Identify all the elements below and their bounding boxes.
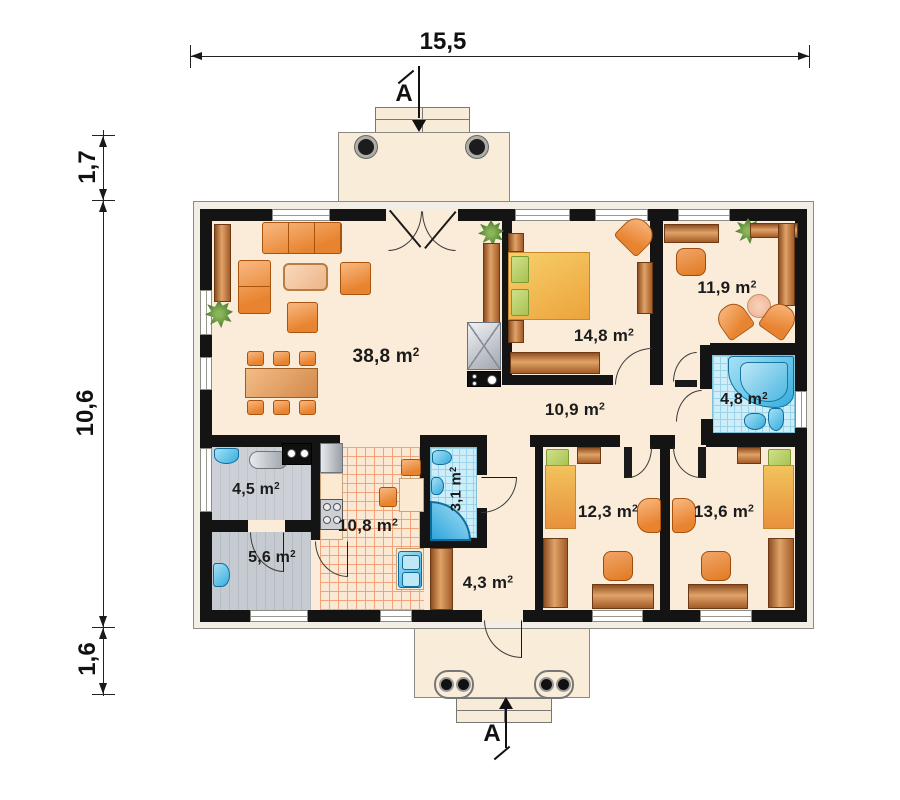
door-leaf: [675, 380, 697, 387]
room-label-utility: 4,5 m2: [232, 481, 280, 499]
burner: [323, 516, 331, 524]
pillow: [511, 289, 529, 316]
desk: [664, 224, 719, 243]
coffee-table: [283, 263, 328, 291]
porch-column-pair: [534, 670, 574, 699]
sink-basin: [402, 555, 420, 570]
dining-chair: [247, 351, 264, 366]
room-label-boiler: 5,6 m2: [248, 549, 296, 567]
nightstand: [737, 447, 761, 464]
dimension-label-porch-top: 1,7: [74, 150, 102, 183]
dimension-arrow: [798, 52, 809, 60]
nightstand: [508, 320, 524, 343]
wardrobe: [768, 538, 794, 608]
nightstand: [508, 233, 524, 252]
wardrobe: [430, 548, 453, 610]
section-line: [418, 66, 420, 118]
sink: [214, 448, 239, 464]
wall-cabinet: [214, 224, 231, 302]
dimension-arrow: [99, 189, 107, 200]
dining-chair: [273, 351, 290, 366]
window: [678, 209, 730, 221]
room-label-kitchen: 10,8 m2: [338, 516, 398, 536]
window: [272, 209, 330, 221]
window: [592, 610, 643, 622]
porch-column-pair: [434, 670, 474, 699]
room-label-living: 38,8 m2: [352, 346, 419, 368]
dimension-label-porch-bottom: 1,6: [74, 642, 102, 675]
sink: [431, 477, 444, 495]
dining-chair: [247, 400, 264, 415]
cooker-hood: [467, 322, 501, 370]
window: [515, 209, 570, 221]
porch-column: [439, 677, 454, 692]
dimension-arrow: [99, 201, 107, 212]
porch-column: [456, 677, 471, 692]
room-label-bedroom: 14,8 m2: [574, 326, 634, 346]
single-bed: [545, 465, 576, 529]
office-chair: [676, 248, 706, 276]
desk: [592, 584, 654, 609]
shelf: [778, 223, 795, 306]
dining-chair: [273, 400, 290, 415]
wall: [477, 435, 487, 475]
porch-column: [355, 136, 377, 158]
sink-basin: [402, 572, 420, 587]
loveseat: [238, 260, 271, 314]
dining-chair: [299, 400, 316, 415]
window: [795, 391, 807, 428]
burner: [472, 381, 477, 386]
kitchen-table: [399, 478, 424, 512]
wardrobe: [543, 538, 568, 608]
room-label-kids-left: 12,3 m2: [578, 502, 638, 522]
dimension-arrow: [99, 628, 107, 639]
sofa: [262, 222, 342, 254]
armchair: [340, 262, 371, 295]
kitchen-chair: [379, 487, 397, 507]
wall: [710, 343, 795, 355]
room-label-kids-right: 13,6 m2: [694, 502, 754, 522]
room-label-wc: 3,1 m2: [448, 467, 465, 512]
fridge: [320, 443, 343, 473]
dimension-label-depth: 10,6: [72, 390, 100, 437]
washer: [282, 443, 312, 465]
dresser: [510, 352, 600, 374]
dining-chair: [299, 351, 316, 366]
dimension-line: [103, 130, 104, 696]
wall: [660, 447, 670, 610]
desk: [688, 584, 748, 609]
dimension-label-width: 15,5: [420, 28, 467, 56]
porch-column: [539, 677, 554, 692]
kitchen-chair: [401, 459, 421, 476]
wall: [200, 520, 248, 532]
wall: [285, 520, 311, 532]
wall: [530, 435, 620, 447]
dimension-arrow: [191, 52, 202, 60]
window: [700, 610, 752, 622]
section-label-top: A: [395, 80, 412, 108]
window: [380, 610, 412, 622]
pillow: [511, 256, 529, 283]
pillow: [546, 449, 569, 466]
dimension-line: [190, 56, 810, 57]
burner: [333, 503, 341, 511]
toilet: [768, 408, 784, 431]
wall: [311, 443, 320, 540]
room-label-rear-hall: 4,3 m2: [463, 573, 514, 593]
shelf: [637, 262, 653, 314]
wall: [200, 209, 212, 622]
washer-door: [287, 449, 296, 458]
stove: [467, 371, 501, 387]
office-chair: [603, 551, 633, 581]
dimension-arrow: [99, 683, 107, 694]
office-chair: [701, 551, 731, 581]
burner: [323, 503, 331, 511]
armchair: [637, 498, 661, 533]
dimension-arrow: [99, 136, 107, 147]
nightstand: [577, 447, 601, 464]
burner: [487, 375, 497, 385]
room-label-bathroom: 4,8 m2: [720, 391, 768, 409]
porch-column: [556, 677, 571, 692]
double-sink: [398, 551, 422, 588]
floor-plan: 38,8 m2 14,8 m2 11,9 m2 10,9 m2 4,8 m2 4…: [0, 0, 900, 800]
section-arrow: [412, 120, 426, 132]
dining-table: [245, 368, 318, 398]
room-label-hall: 10,9 m2: [545, 400, 605, 420]
porch-column: [466, 136, 488, 158]
window: [250, 610, 308, 622]
dimension-tick: [92, 694, 115, 695]
dimension-tick: [809, 45, 810, 68]
pillow: [768, 449, 791, 466]
sink: [744, 413, 766, 430]
section-label-bottom: A: [483, 720, 500, 748]
armchair: [672, 498, 696, 533]
armchair: [287, 302, 318, 333]
section-arrow: [499, 697, 513, 709]
window: [200, 357, 212, 390]
window: [200, 448, 212, 512]
wall: [535, 443, 543, 610]
room-label-office: 11,9 m2: [697, 278, 756, 298]
washer-door: [300, 449, 309, 458]
wall-cabinet: [483, 243, 500, 323]
sink: [213, 563, 230, 587]
wall: [502, 375, 613, 385]
wall: [706, 435, 795, 447]
toilet: [432, 450, 452, 465]
single-bed: [763, 465, 794, 529]
dimension-arrow: [99, 616, 107, 627]
burner: [472, 374, 477, 379]
